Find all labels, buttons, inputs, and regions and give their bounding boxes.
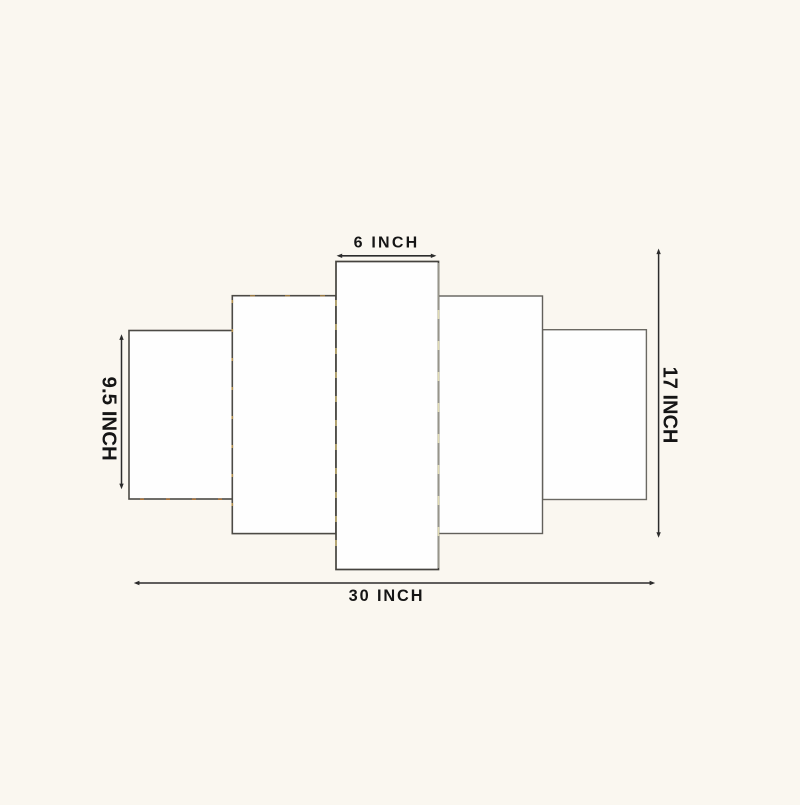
svg-text:17 INCH: 17 INCH (659, 367, 681, 444)
svg-text:30 INCH: 30 INCH (349, 587, 425, 605)
svg-text:9.5 INCH: 9.5 INCH (98, 377, 121, 461)
svg-text:6 INCH: 6 INCH (354, 235, 420, 252)
